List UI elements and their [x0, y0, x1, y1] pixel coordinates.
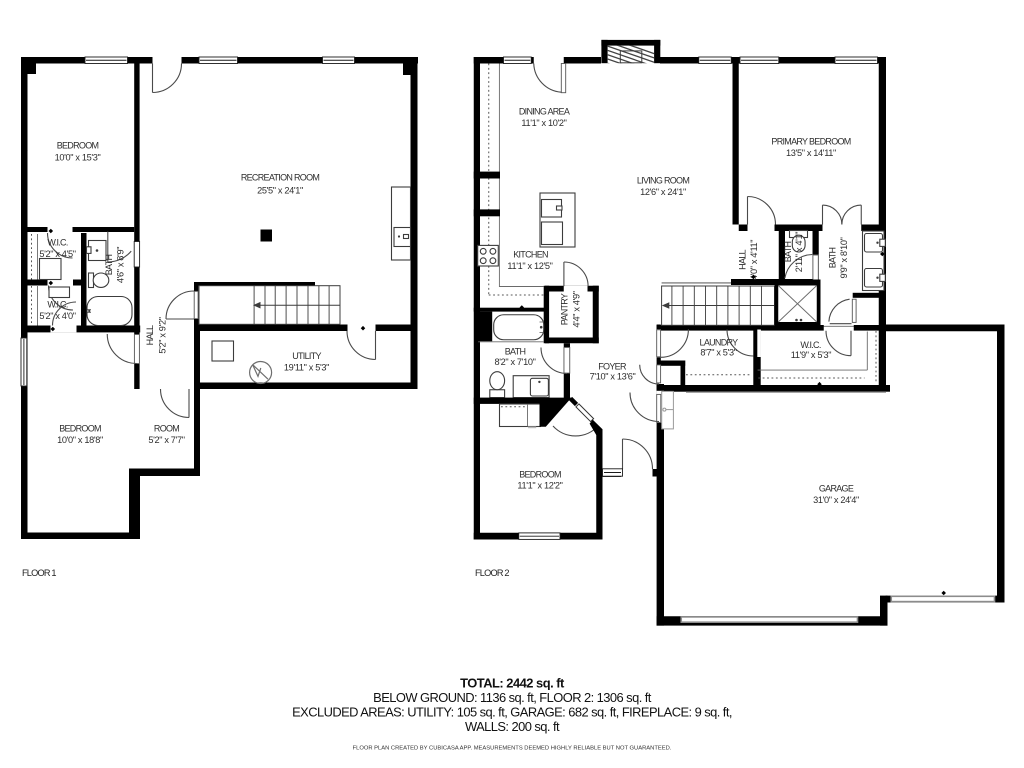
- svg-text:FLOOR PLAN CREATED BY CUBICASA: FLOOR PLAN CREATED BY CUBICASA APP. MEAS…: [353, 746, 672, 752]
- svg-text:2'11" x 4'1": 2'11" x 4'1": [794, 232, 804, 272]
- svg-text:8'7" x 5'3": 8'7" x 5'3": [700, 348, 736, 358]
- svg-text:11'1" x 12'5": 11'1" x 12'5": [507, 261, 552, 271]
- svg-text:9'9" x 8'10": 9'9" x 8'10": [839, 237, 849, 278]
- svg-text:HALL: HALL: [738, 249, 748, 269]
- svg-text:LAUNDRY: LAUNDRY: [700, 338, 739, 348]
- svg-text:FOYER: FOYER: [598, 362, 627, 372]
- svg-text:TOTAL: 2442 sq. ft: TOTAL: 2442 sq. ft: [460, 676, 565, 691]
- svg-text:LIVING ROOM: LIVING ROOM: [637, 176, 690, 186]
- svg-text:W.I.C.: W.I.C.: [47, 238, 67, 248]
- svg-text:12'6" x 24'1": 12'6" x 24'1": [640, 187, 686, 197]
- svg-text:EXCLUDED AREAS: UTILITY: 105 s: EXCLUDED AREAS: UTILITY: 105 sq. ft, GAR…: [292, 705, 732, 720]
- svg-text:BATH: BATH: [828, 248, 838, 269]
- svg-text:RECREATION ROOM: RECREATION ROOM: [241, 173, 320, 183]
- svg-text:PANTRY: PANTRY: [560, 293, 570, 325]
- svg-text:7'10" x 13'6": 7'10" x 13'6": [590, 372, 636, 382]
- svg-text:31'0" x 24'4": 31'0" x 24'4": [813, 495, 859, 505]
- svg-text:5'2" x 4'0": 5'2" x 4'0": [39, 311, 75, 321]
- svg-text:ROOM: ROOM: [154, 424, 179, 434]
- svg-text:10'0" x 15'3": 10'0" x 15'3": [55, 153, 101, 163]
- svg-text:19'11" x 5'3": 19'11" x 5'3": [284, 363, 329, 373]
- svg-text:5'2" x 4'5": 5'2" x 4'5": [39, 249, 75, 259]
- svg-text:BATH: BATH: [783, 242, 793, 263]
- svg-text:4'4" x 4'9": 4'4" x 4'9": [572, 291, 582, 327]
- svg-text:GARAGE: GARAGE: [819, 484, 854, 494]
- svg-text:10'0" x 18'8": 10'0" x 18'8": [57, 435, 103, 445]
- svg-text:DINING AREA: DINING AREA: [519, 107, 570, 117]
- svg-text:WALLS: 200 sq. ft: WALLS: 200 sq. ft: [465, 719, 560, 734]
- svg-text:11'1" x 12'2": 11'1" x 12'2": [517, 481, 562, 491]
- svg-text:W.I.C.: W.I.C.: [47, 300, 67, 310]
- svg-text:BEDROOM: BEDROOM: [57, 141, 99, 151]
- svg-text:W.I.C.: W.I.C.: [800, 340, 820, 350]
- svg-text:FLOOR 1: FLOOR 1: [22, 568, 56, 578]
- svg-text:KITCHEN: KITCHEN: [513, 250, 548, 260]
- svg-text:5'2" x 9'2": 5'2" x 9'2": [158, 317, 168, 353]
- svg-text:13'5" x 14'11": 13'5" x 14'11": [786, 148, 836, 158]
- svg-text:PRIMARY BEDROOM: PRIMARY BEDROOM: [771, 137, 850, 147]
- svg-text:BEDROOM: BEDROOM: [59, 424, 101, 434]
- svg-text:HALL: HALL: [145, 325, 155, 345]
- svg-text:FLOOR 2: FLOOR 2: [475, 568, 509, 578]
- svg-text:11'9" x 5'3": 11'9" x 5'3": [791, 350, 831, 360]
- svg-text:BATH: BATH: [505, 347, 526, 357]
- svg-text:BEDROOM: BEDROOM: [519, 470, 561, 480]
- svg-text:4'0" x 4'11": 4'0" x 4'11": [749, 240, 759, 280]
- svg-text:25'5" x 24'1": 25'5" x 24'1": [257, 186, 303, 196]
- svg-text:11'1" x 10'2": 11'1" x 10'2": [521, 118, 566, 128]
- svg-text:5'2" x 7'7": 5'2" x 7'7": [148, 435, 184, 445]
- svg-text:4'6" x 8'9": 4'6" x 8'9": [116, 247, 126, 283]
- svg-text:8'2" x 7'10": 8'2" x 7'10": [494, 357, 535, 367]
- svg-text:UTILITY: UTILITY: [292, 351, 321, 361]
- svg-text:BELOW GROUND: 1136 sq. ft, FLO: BELOW GROUND: 1136 sq. ft, FLOOR 2: 1306…: [373, 690, 652, 705]
- svg-text:BATH: BATH: [104, 255, 114, 276]
